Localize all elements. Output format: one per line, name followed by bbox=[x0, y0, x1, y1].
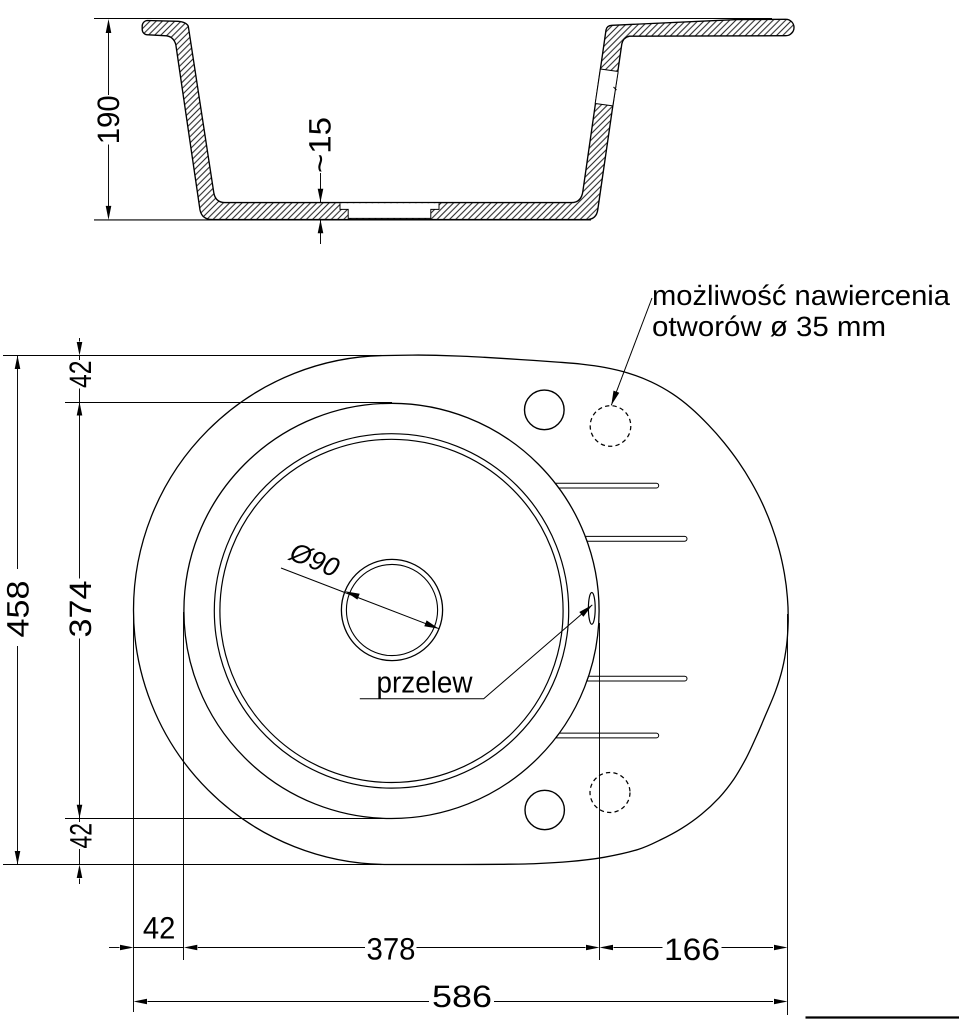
svg-text:42: 42 bbox=[64, 823, 99, 849]
svg-text:586: 586 bbox=[432, 979, 492, 1014]
svg-text:378: 378 bbox=[367, 932, 416, 967]
svg-text:Ø90: Ø90 bbox=[285, 536, 343, 583]
svg-text:374: 374 bbox=[63, 581, 98, 638]
svg-text:458: 458 bbox=[1, 581, 36, 638]
svg-text:166: 166 bbox=[664, 932, 720, 967]
svg-text:otworów ø 35 mm: otworów ø 35 mm bbox=[652, 311, 886, 342]
svg-text:możliwość nawiercenia: możliwość nawiercenia bbox=[652, 280, 950, 311]
svg-text:przelew: przelew bbox=[377, 667, 473, 700]
svg-text:42: 42 bbox=[63, 361, 98, 389]
svg-text:190: 190 bbox=[91, 95, 126, 144]
svg-text:42: 42 bbox=[143, 911, 176, 946]
svg-text:~15: ~15 bbox=[303, 117, 338, 173]
